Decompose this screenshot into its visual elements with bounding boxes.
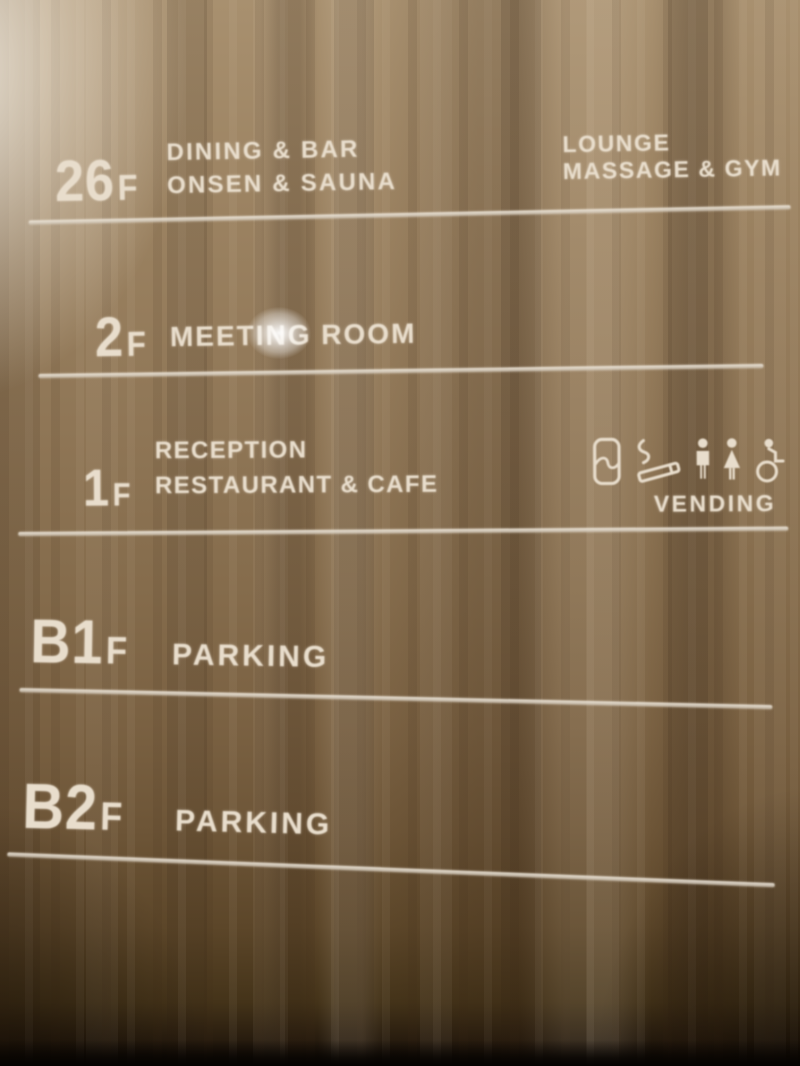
floor-number: B1 [30, 610, 104, 675]
bottom-shadow [0, 1040, 800, 1066]
facility-icons [592, 436, 778, 487]
divider-line [19, 688, 772, 709]
divider-line [7, 852, 775, 887]
divider-line [29, 205, 791, 224]
floor-label-group: PARKING [172, 638, 330, 674]
floor-suffix: F [126, 316, 146, 374]
floor-number-b2f: B2F [21, 773, 123, 850]
floor-number: B2 [22, 773, 99, 841]
floor-label: RESTAURANT & CAFE [155, 467, 439, 503]
smoking-area-icon [632, 438, 684, 486]
floor-suffix: F [117, 158, 138, 218]
floor-label-group: PARKING [175, 805, 333, 843]
womens-restroom-icon [722, 437, 742, 485]
divider-line [38, 364, 763, 378]
floor-row-b1f: B1F PARKING [0, 606, 800, 719]
floor-number-26f: 26F [55, 151, 138, 219]
floor-suffix: F [113, 467, 131, 521]
floor-label: PARKING [172, 638, 330, 674]
accessible-restroom-icon [752, 437, 786, 485]
floor-directory-sign-photo: 26F DINING & BAR ONSEN & SAUNA LOUNGE MA… [0, 0, 800, 1066]
floor-row-b2f: B2F PARKING [0, 768, 800, 893]
floor-number: 1 [83, 462, 110, 516]
floor-number-b1f: B1F [30, 610, 128, 684]
floor-number: 2 [95, 308, 125, 366]
floor-label: RECEPTION [155, 432, 439, 468]
floor-label: LOUNGE [562, 127, 781, 158]
floor-label: MEETING ROOM [170, 318, 417, 353]
floor-label: PARKING [175, 805, 333, 843]
divider-line [18, 527, 788, 536]
floor-number: 26 [55, 151, 116, 212]
floor-directory-sign: 26F DINING & BAR ONSEN & SAUNA LOUNGE MA… [0, 0, 800, 1066]
floor-row-1f: 1F RECEPTION RESTAURANT & CAFE [0, 428, 800, 542]
floor-suffix: F [100, 784, 123, 851]
floor-label: ONSEN & SAUNA [167, 165, 397, 202]
floor-label-group-right: LOUNGE MASSAGE & GYM [562, 127, 782, 185]
floor-label-group: MEETING ROOM [170, 318, 417, 353]
floor-label-group: DINING & BAR ONSEN & SAUNA [166, 132, 397, 202]
floor-row-2f: 2F MEETING ROOM [0, 292, 800, 383]
floor-label: DINING & BAR [166, 132, 396, 169]
vending-label: VENDING [654, 490, 776, 518]
floor-suffix: F [105, 619, 127, 683]
floor-label: MASSAGE & GYM [563, 154, 782, 185]
vending-machine-icon [592, 437, 622, 487]
floor-label-group: RECEPTION RESTAURANT & CAFE [155, 432, 439, 503]
floor-number-2f: 2F [95, 308, 147, 375]
floor-row-26f: 26F DINING & BAR ONSEN & SAUNA LOUNGE MA… [0, 123, 800, 232]
floor-number-1f: 1F [83, 461, 131, 521]
mens-restroom-icon [694, 437, 712, 485]
